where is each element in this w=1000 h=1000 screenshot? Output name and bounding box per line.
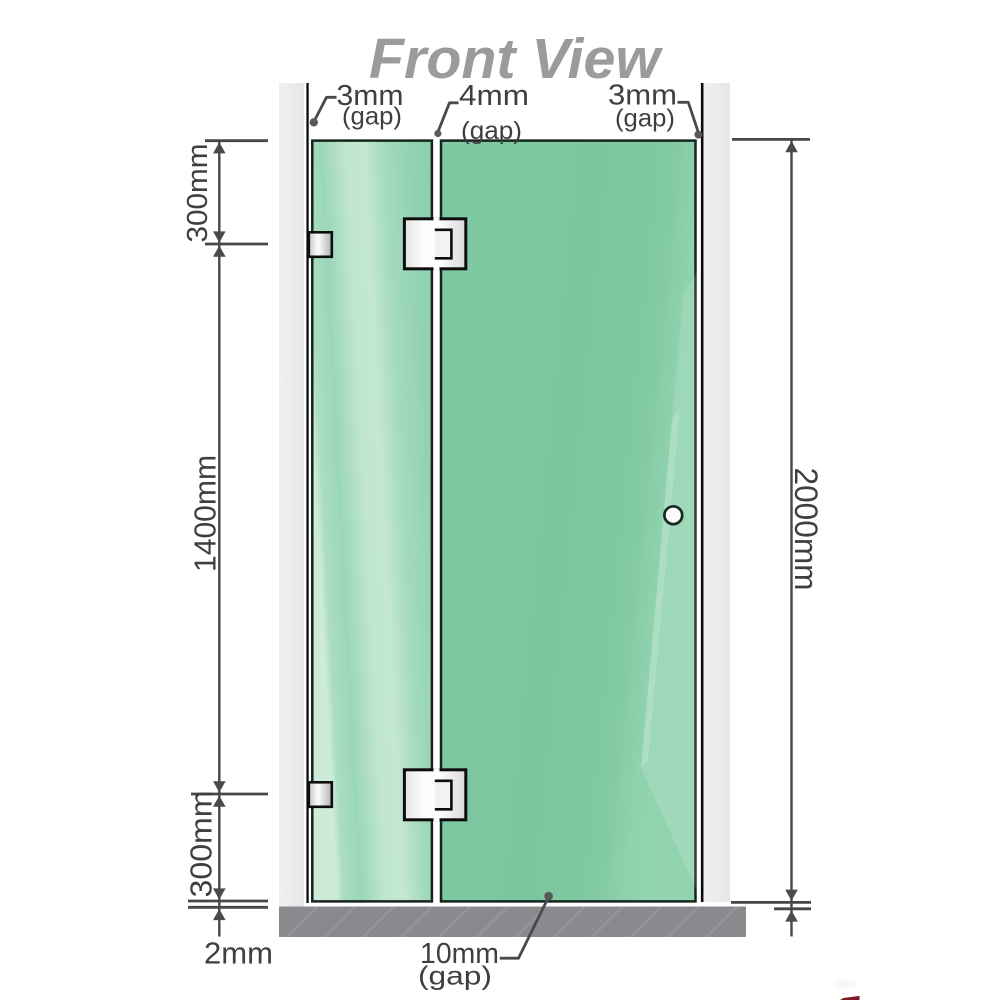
svg-text:(gap): (gap) <box>461 117 522 145</box>
svg-text:4mm: 4mm <box>459 80 529 112</box>
svg-text:2mm: 2mm <box>204 936 273 971</box>
svg-text:300mm: 300mm <box>184 791 219 898</box>
svg-text:(gap): (gap) <box>615 105 675 133</box>
svg-text:300mm: 300mm <box>182 144 214 243</box>
svg-text:2000mm: 2000mm <box>788 468 824 591</box>
svg-text:(gap): (gap) <box>418 961 492 991</box>
svg-text:1400mm: 1400mm <box>188 455 223 572</box>
svg-text:(gap): (gap) <box>342 103 402 131</box>
